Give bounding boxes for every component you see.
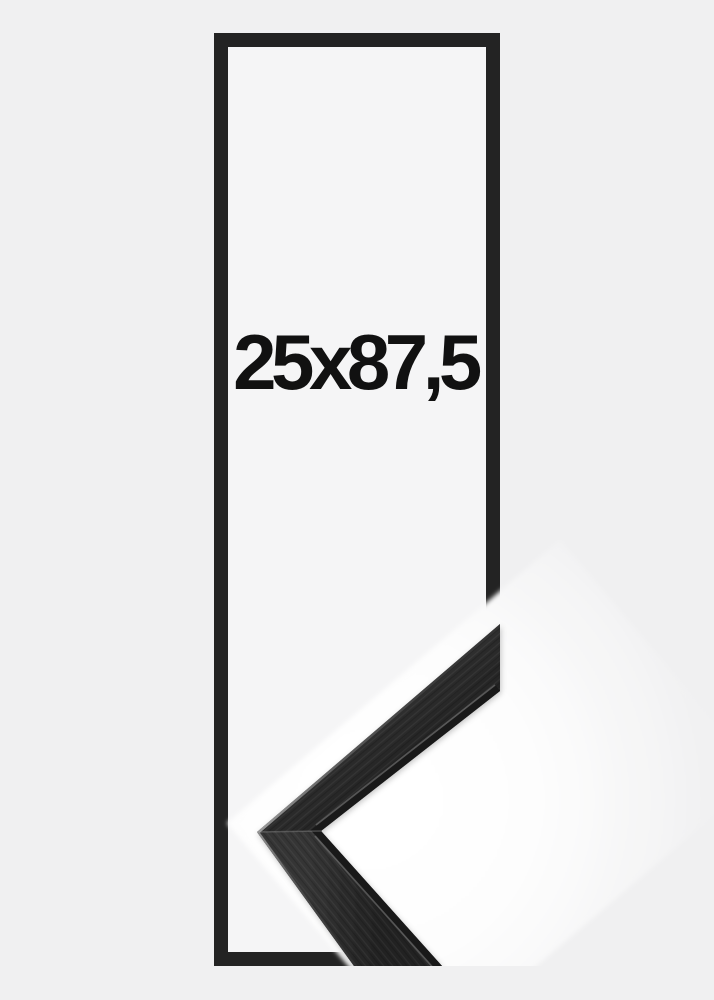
product-image: 25x87,5 — [0, 0, 714, 1000]
mitre-seam — [257, 831, 321, 832]
size-label: 25x87,5 — [210, 322, 500, 406]
frame-preview-graphic — [0, 0, 714, 1000]
frame-outline-top — [214, 33, 500, 47]
frame-outline-left — [214, 33, 228, 966]
